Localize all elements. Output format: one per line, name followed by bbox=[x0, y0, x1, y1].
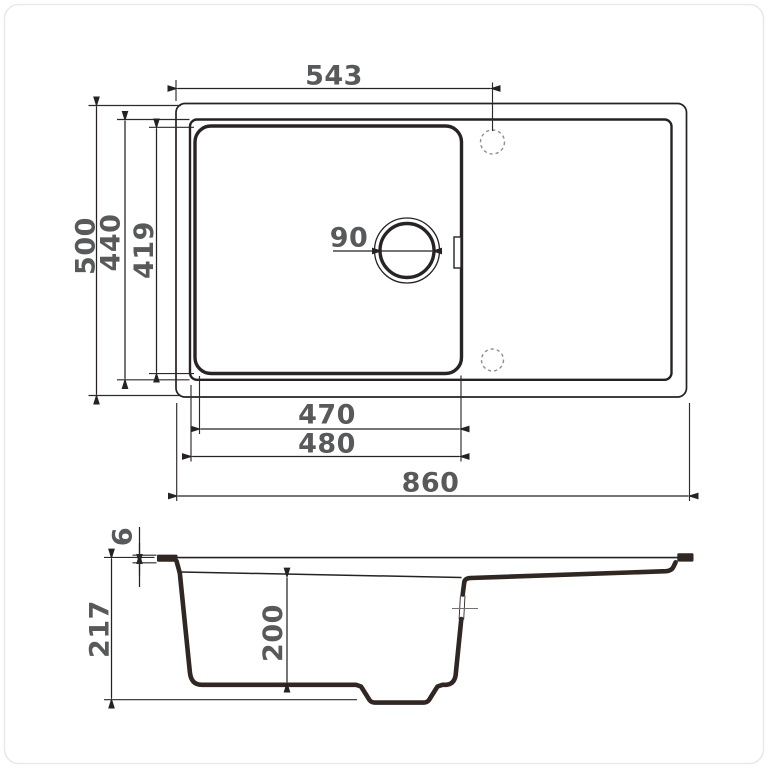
side-view: 6 217 200 bbox=[85, 527, 694, 703]
drainboard-profile bbox=[463, 562, 676, 594]
wall-edge-line bbox=[459, 596, 460, 620]
dim-overall-width: 860 bbox=[177, 403, 690, 501]
dim-label-440: 440 bbox=[96, 214, 127, 272]
dim-bowl-height: 200 bbox=[258, 578, 289, 683]
dim-bowl-depth-plan: 419 bbox=[129, 127, 194, 373]
dim-label-217: 217 bbox=[85, 600, 116, 658]
bowl-inner-ledge bbox=[181, 572, 462, 578]
dim-label-860: 860 bbox=[402, 468, 460, 499]
drawing-svg: 543 500 440 419 90 bbox=[0, 0, 768, 768]
dim-label-200: 200 bbox=[258, 604, 289, 662]
top-view: 543 500 440 419 90 bbox=[71, 61, 690, 502]
sink-dimension-drawing: 543 500 440 419 90 bbox=[0, 0, 768, 768]
overflow-section-mark bbox=[452, 596, 478, 620]
dim-overall-height: 217 bbox=[85, 557, 358, 699]
dim-label-6: 6 bbox=[108, 527, 139, 546]
overflow-slot bbox=[454, 237, 461, 268]
dim-label-419: 419 bbox=[129, 221, 160, 279]
bowl-section-profile bbox=[177, 561, 462, 703]
dim-faucet-offset: 543 bbox=[176, 61, 491, 102]
dim-label-480: 480 bbox=[298, 429, 356, 460]
wall-edge-line bbox=[464, 596, 465, 620]
dim-label-90: 90 bbox=[330, 223, 369, 254]
faucet-hole-top bbox=[481, 130, 505, 154]
sink-outer-edge bbox=[176, 104, 687, 398]
sink-rim-edge bbox=[190, 120, 672, 380]
right-rim-lip bbox=[677, 553, 693, 561]
dim-label-543: 543 bbox=[305, 61, 363, 92]
faucet-hole-bottom bbox=[482, 349, 504, 371]
sink-bowl bbox=[195, 126, 462, 374]
dim-label-470: 470 bbox=[298, 400, 356, 431]
